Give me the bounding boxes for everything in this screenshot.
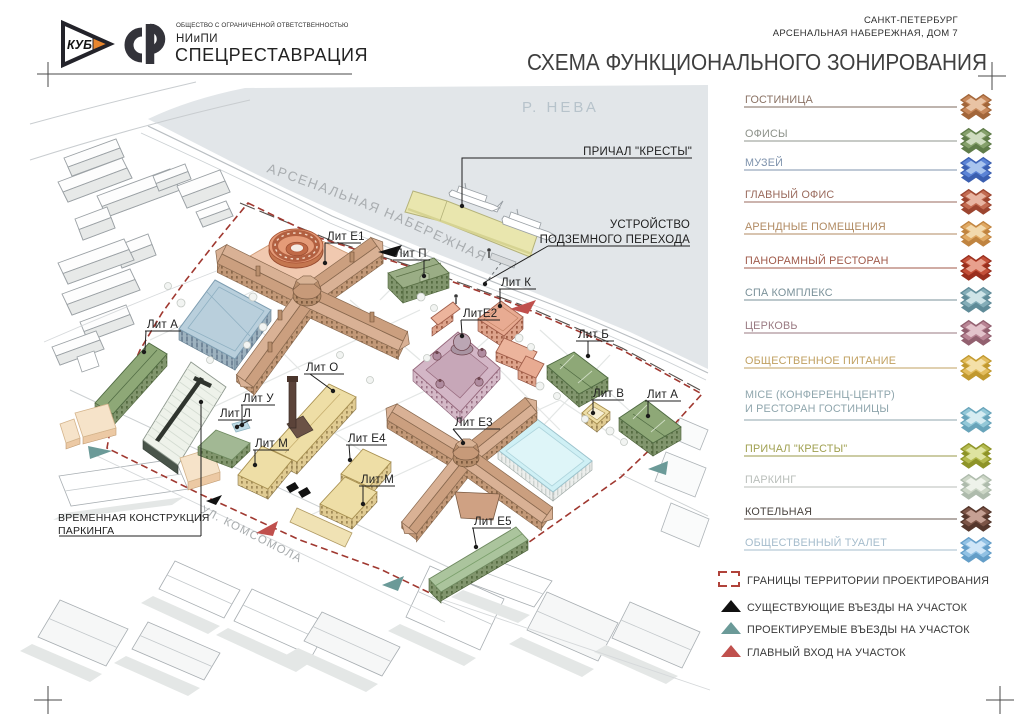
svg-text:САНКТ-ПЕТЕРБУРГ: САНКТ-ПЕТЕРБУРГ [864,15,958,26]
svg-text:МУЗЕЙ: МУЗЕЙ [745,156,783,169]
svg-text:ПАНОРАМНЫЙ РЕСТОРАН: ПАНОРАМНЫЙ РЕСТОРАН [745,254,889,267]
svg-text:Лит П: Лит П [395,248,427,260]
svg-text:ПОДЗЕМНОГО ПЕРЕХОДА: ПОДЗЕМНОГО ПЕРЕХОДА [540,234,691,246]
svg-text:КУБ: КУБ [67,38,92,52]
svg-text:Лит К: Лит К [501,277,531,289]
svg-text:Лит О: Лит О [306,362,338,374]
svg-text:КОТЕЛЬНАЯ: КОТЕЛЬНАЯ [745,506,812,518]
svg-text:Лит Л: Лит Л [220,408,251,420]
svg-text:Лит Е4: Лит Е4 [348,433,386,445]
svg-text:АРЕНДНЫЕ ПОМЕЩЕНИЯ: АРЕНДНЫЕ ПОМЕЩЕНИЯ [745,221,886,233]
svg-text:Лит Е5: Лит Е5 [474,516,512,528]
svg-text:АРСЕНАЛЬНАЯ НАБЕРЕЖНАЯ, ДОМ 7: АРСЕНАЛЬНАЯ НАБЕРЕЖНАЯ, ДОМ 7 [773,28,958,39]
svg-text:СПА КОМПЛЕКС: СПА КОМПЛЕКС [745,287,833,299]
svg-text:СУЩЕСТВУЮЩИЕ ВЪЕЗДЫ НА УЧАСТОК: СУЩЕСТВУЮЩИЕ ВЪЕЗДЫ НА УЧАСТОК [747,602,968,614]
svg-text:Лит М: Лит М [255,438,288,450]
svg-text:Лит А: Лит А [147,319,178,331]
svg-text:И РЕСТОРАН ГОСТИНИЦЫ: И РЕСТОРАН ГОСТИНИЦЫ [745,403,889,415]
svg-text:ЦЕРКОВЬ: ЦЕРКОВЬ [745,320,798,332]
svg-text:Лит Б: Лит Б [578,329,609,341]
svg-text:ГОСТИНИЦА: ГОСТИНИЦА [745,94,814,106]
svg-text:ОБЩЕСТВО С ОГРАНИЧЕННОЙ ОТВЕТС: ОБЩЕСТВО С ОГРАНИЧЕННОЙ ОТВЕТСТВЕННОСТЬЮ [176,20,349,29]
svg-text:ГЛАВНЫЙ ВХОД НА УЧАСТОК: ГЛАВНЫЙ ВХОД НА УЧАСТОК [747,646,906,659]
svg-text:Р. НЕВА: Р. НЕВА [522,99,599,116]
svg-text:ГЛАВНЫЙ ОФИС: ГЛАВНЫЙ ОФИС [745,188,834,201]
svg-text:ОБЩЕСТВЕННОЕ ПИТАНИЕ: ОБЩЕСТВЕННОЕ ПИТАНИЕ [745,355,896,367]
svg-text:ПРОЕКТИРУЕМЫЕ ВЪЕЗДЫ НА УЧАСТО: ПРОЕКТИРУЕМЫЕ ВЪЕЗДЫ НА УЧАСТОК [747,624,970,636]
svg-text:НИиПИ: НИиПИ [176,33,218,45]
svg-text:Лит У: Лит У [243,393,274,405]
svg-text:ПАРКИНГ: ПАРКИНГ [745,474,796,486]
svg-text:ОФИСЫ: ОФИСЫ [745,128,788,140]
svg-text:ЛитЕ2: ЛитЕ2 [463,308,497,320]
svg-text:ПРИЧАЛ "КРЕСТЫ": ПРИЧАЛ "КРЕСТЫ" [745,443,847,455]
svg-text:СПЕЦРЕСТАВРАЦИЯ: СПЕЦРЕСТАВРАЦИЯ [175,45,368,65]
svg-text:Лит В: Лит В [593,388,624,400]
svg-text:Лит М: Лит М [361,474,394,486]
svg-text:ПАРКИНГА: ПАРКИНГА [58,525,114,537]
svg-text:УСТРОЙСТВО: УСТРОЙСТВО [610,218,690,231]
svg-text:ВРЕМЕННАЯ КОНСТРУКЦИЯ: ВРЕМЕННАЯ КОНСТРУКЦИЯ [58,512,209,524]
svg-text:Лит А: Лит А [647,389,678,401]
svg-text:СХЕМА ФУНКЦИОНАЛЬНОГО ЗОНИРОВА: СХЕМА ФУНКЦИОНАЛЬНОГО ЗОНИРОВАНИЯ [527,49,987,75]
svg-text:Лит Е1: Лит Е1 [327,231,365,243]
svg-text:Лит Е3: Лит Е3 [455,417,493,429]
svg-text:MICE (КОНФЕРЕНЦ-ЦЕНТР): MICE (КОНФЕРЕНЦ-ЦЕНТР) [745,389,895,401]
svg-text:ОБЩЕСТВЕННЫЙ ТУАЛЕТ: ОБЩЕСТВЕННЫЙ ТУАЛЕТ [745,536,887,549]
svg-text:ПРИЧАЛ "КРЕСТЫ": ПРИЧАЛ "КРЕСТЫ" [583,146,692,158]
svg-text:ГРАНИЦЫ ТЕРРИТОРИИ ПРОЕКТИРОВА: ГРАНИЦЫ ТЕРРИТОРИИ ПРОЕКТИРОВАНИЯ [747,575,989,587]
